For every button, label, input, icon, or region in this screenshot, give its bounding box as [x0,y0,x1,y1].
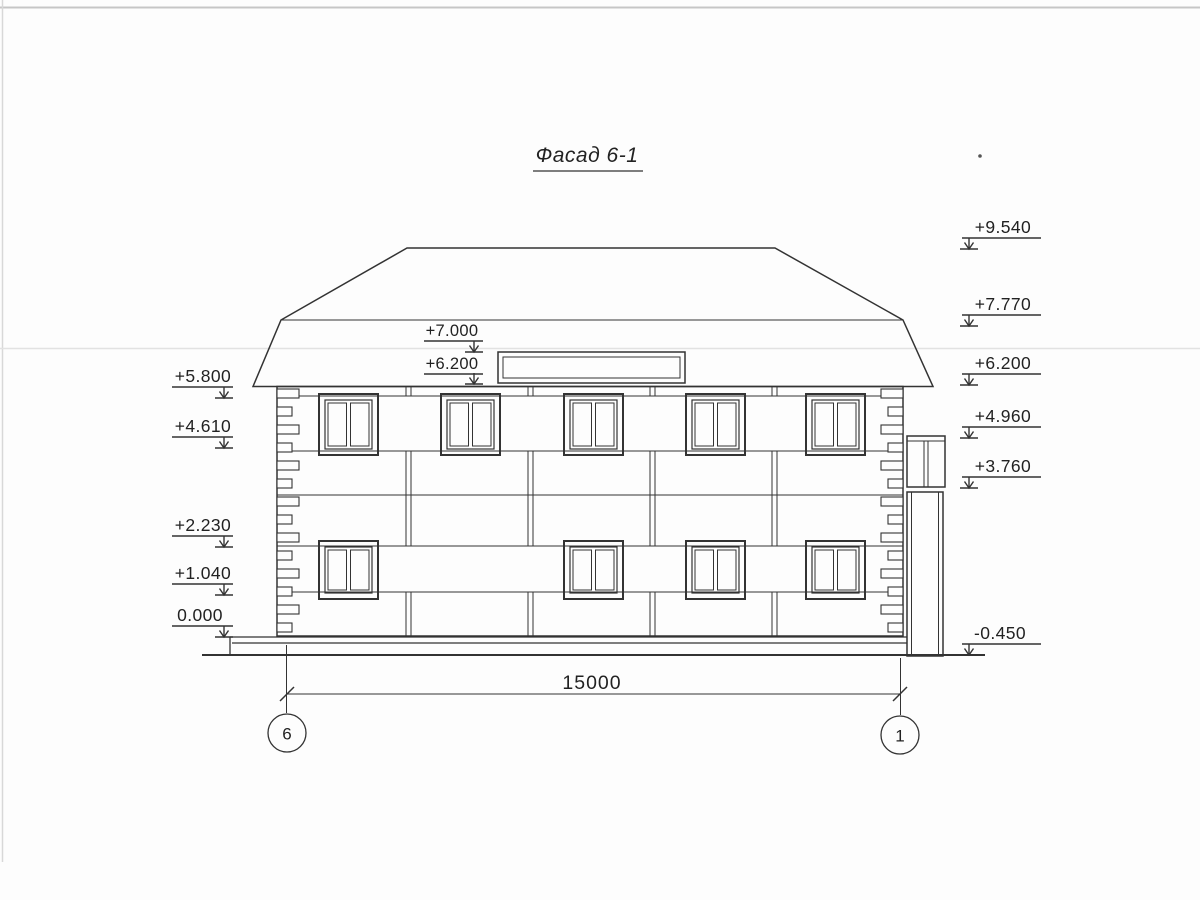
elevation-marker: +4.960 [960,406,1041,438]
elevation-value: +6.200 [975,353,1031,373]
elevation-value: +4.610 [175,416,231,436]
elevation-marker: +6.200 [424,355,483,384]
right-quoins [881,389,903,632]
elevation-marker: +6.200 [960,353,1041,385]
plinth [202,637,985,655]
elevation-value: +2.230 [175,515,231,535]
window [806,541,865,599]
elevation-markers-right: +9.540 +7.770 +6.200 +4.960 +3.760 -0.45… [960,217,1041,655]
dimension-label: 15000 [562,672,621,694]
axis-label-right: 1 [895,727,904,746]
elevation-marker: +1.040 [172,563,233,595]
elevation-value: +5.800 [175,366,231,386]
upper-window-band [277,396,903,451]
elevation-value: +9.540 [975,217,1031,237]
axis-bubble-right: 1 [881,716,919,754]
left-quoins [277,389,299,632]
lower-window-band [277,546,903,592]
elevation-marker: +9.540 [960,217,1041,249]
windows-lower [319,541,865,599]
attic-panel [498,352,685,383]
axis-bubble-left: 6 [268,714,306,752]
window [806,394,865,455]
window [686,394,745,455]
shaft-body [907,492,943,656]
elevation-marker: +3.760 [960,456,1041,488]
windows-upper [319,394,865,455]
scan-dot [978,154,982,158]
elevation-marker: +7.770 [960,294,1041,326]
window [441,394,500,455]
elevation-value: +4.960 [975,406,1031,426]
elevation-value: +3.760 [975,456,1031,476]
shaft-window [907,436,945,487]
window [319,394,378,455]
elevation-value: -0.450 [974,623,1026,643]
elevation-value: +7.770 [975,294,1031,314]
elevation-marker: +5.800 [172,366,233,398]
elevation-marker: +2.230 [172,515,233,547]
elevation-value: +1.040 [175,563,231,583]
dimension: 15000 6 1 [268,645,919,754]
window [319,541,378,599]
elevation-markers-left: +5.800 +4.610 +2.230 +1.040 0.000 [172,366,233,637]
roof [253,248,933,387]
drawing-title: Фасад 6-1 [536,144,639,167]
elevation-value: +7.000 [426,322,479,340]
elevation-marker: 0.000 [172,605,233,637]
axis-label-left: 6 [282,725,291,744]
elevation-value: +6.200 [426,355,479,373]
elevation-marker: -0.450 [960,623,1041,655]
elevation-marker: +4.610 [172,416,233,448]
title-block: Фасад 6-1 [533,144,643,171]
side-shaft [907,436,945,656]
elevation-markers-roof: +7.000 +6.200 [424,322,483,384]
drawing-sheet: 15000 6 1 Фасад 6-1 +5.800 +4.610 +2.230 [0,0,1200,900]
window [686,541,745,599]
window [564,541,623,599]
elevation-value: 0.000 [177,605,223,625]
facade-drawing: 15000 6 1 Фасад 6-1 +5.800 +4.610 +2.230 [0,0,1200,900]
window [564,394,623,455]
elevation-marker: +7.000 [424,322,483,352]
